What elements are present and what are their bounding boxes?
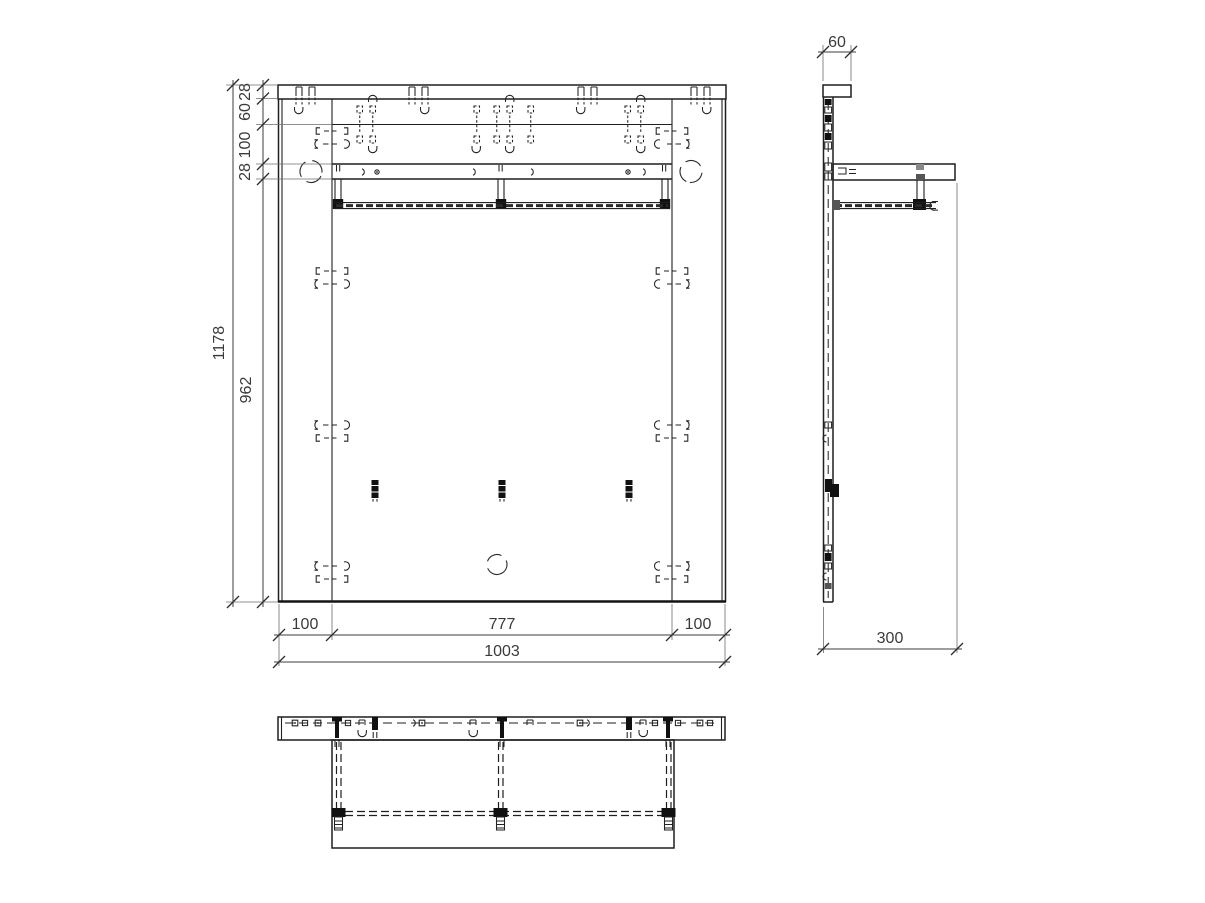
dim-total-width: 1003	[484, 643, 520, 660]
side-rail-bracket	[833, 180, 938, 210]
dim-body-height: 962	[238, 377, 255, 404]
top-fittings	[295, 87, 711, 114]
dim-chain-28b: 28	[237, 163, 254, 181]
stile-edges	[332, 99, 672, 601]
panel-outer-edges	[279, 99, 726, 602]
side-lower-hardware	[823, 422, 839, 589]
connector-block	[626, 480, 633, 503]
dim-top-depth: 60	[828, 34, 846, 51]
dim-left-inset: 100	[292, 616, 319, 633]
dim-total-depth: 300	[877, 630, 904, 647]
shelf-side	[833, 164, 955, 180]
technical-drawing-page: 1178 962 28 60 100 28 100 777 100 1003 6…	[0, 0, 1205, 903]
front-view	[278, 85, 726, 602]
drawing-svg: 1178 962 28 60 100 28 100 777 100 1003 6…	[0, 0, 1205, 903]
mounting-hole-left	[296, 157, 325, 186]
mounting-hole-right	[676, 157, 705, 186]
panel-inner-edges	[282, 99, 722, 602]
stile-cam-fittings	[315, 128, 690, 582]
side-hardware-stack	[825, 99, 832, 180]
dim-chain-100: 100	[237, 132, 254, 159]
rail-foot-plan	[494, 808, 508, 830]
connector-block	[372, 480, 379, 503]
dim-right-inset: 100	[685, 616, 712, 633]
dim-total-height: 1178	[211, 326, 228, 361]
rail-foot-plan	[332, 808, 346, 830]
dim-inner-width: 777	[489, 616, 516, 633]
hanging-rail	[333, 179, 670, 209]
top-board-side	[823, 85, 851, 97]
shelf-cam	[838, 168, 856, 174]
mounting-hole-bottom	[483, 551, 510, 578]
bottom-view	[278, 717, 725, 848]
dim-chain-28a: 28	[237, 83, 254, 101]
side-view: 60	[817, 34, 963, 655]
front-dimensions: 1178 962 28 60 100 28 100 777 100 1003	[211, 79, 731, 668]
top-rail	[278, 85, 726, 99]
connector-block	[499, 480, 506, 503]
dim-chain-60: 60	[237, 103, 254, 121]
